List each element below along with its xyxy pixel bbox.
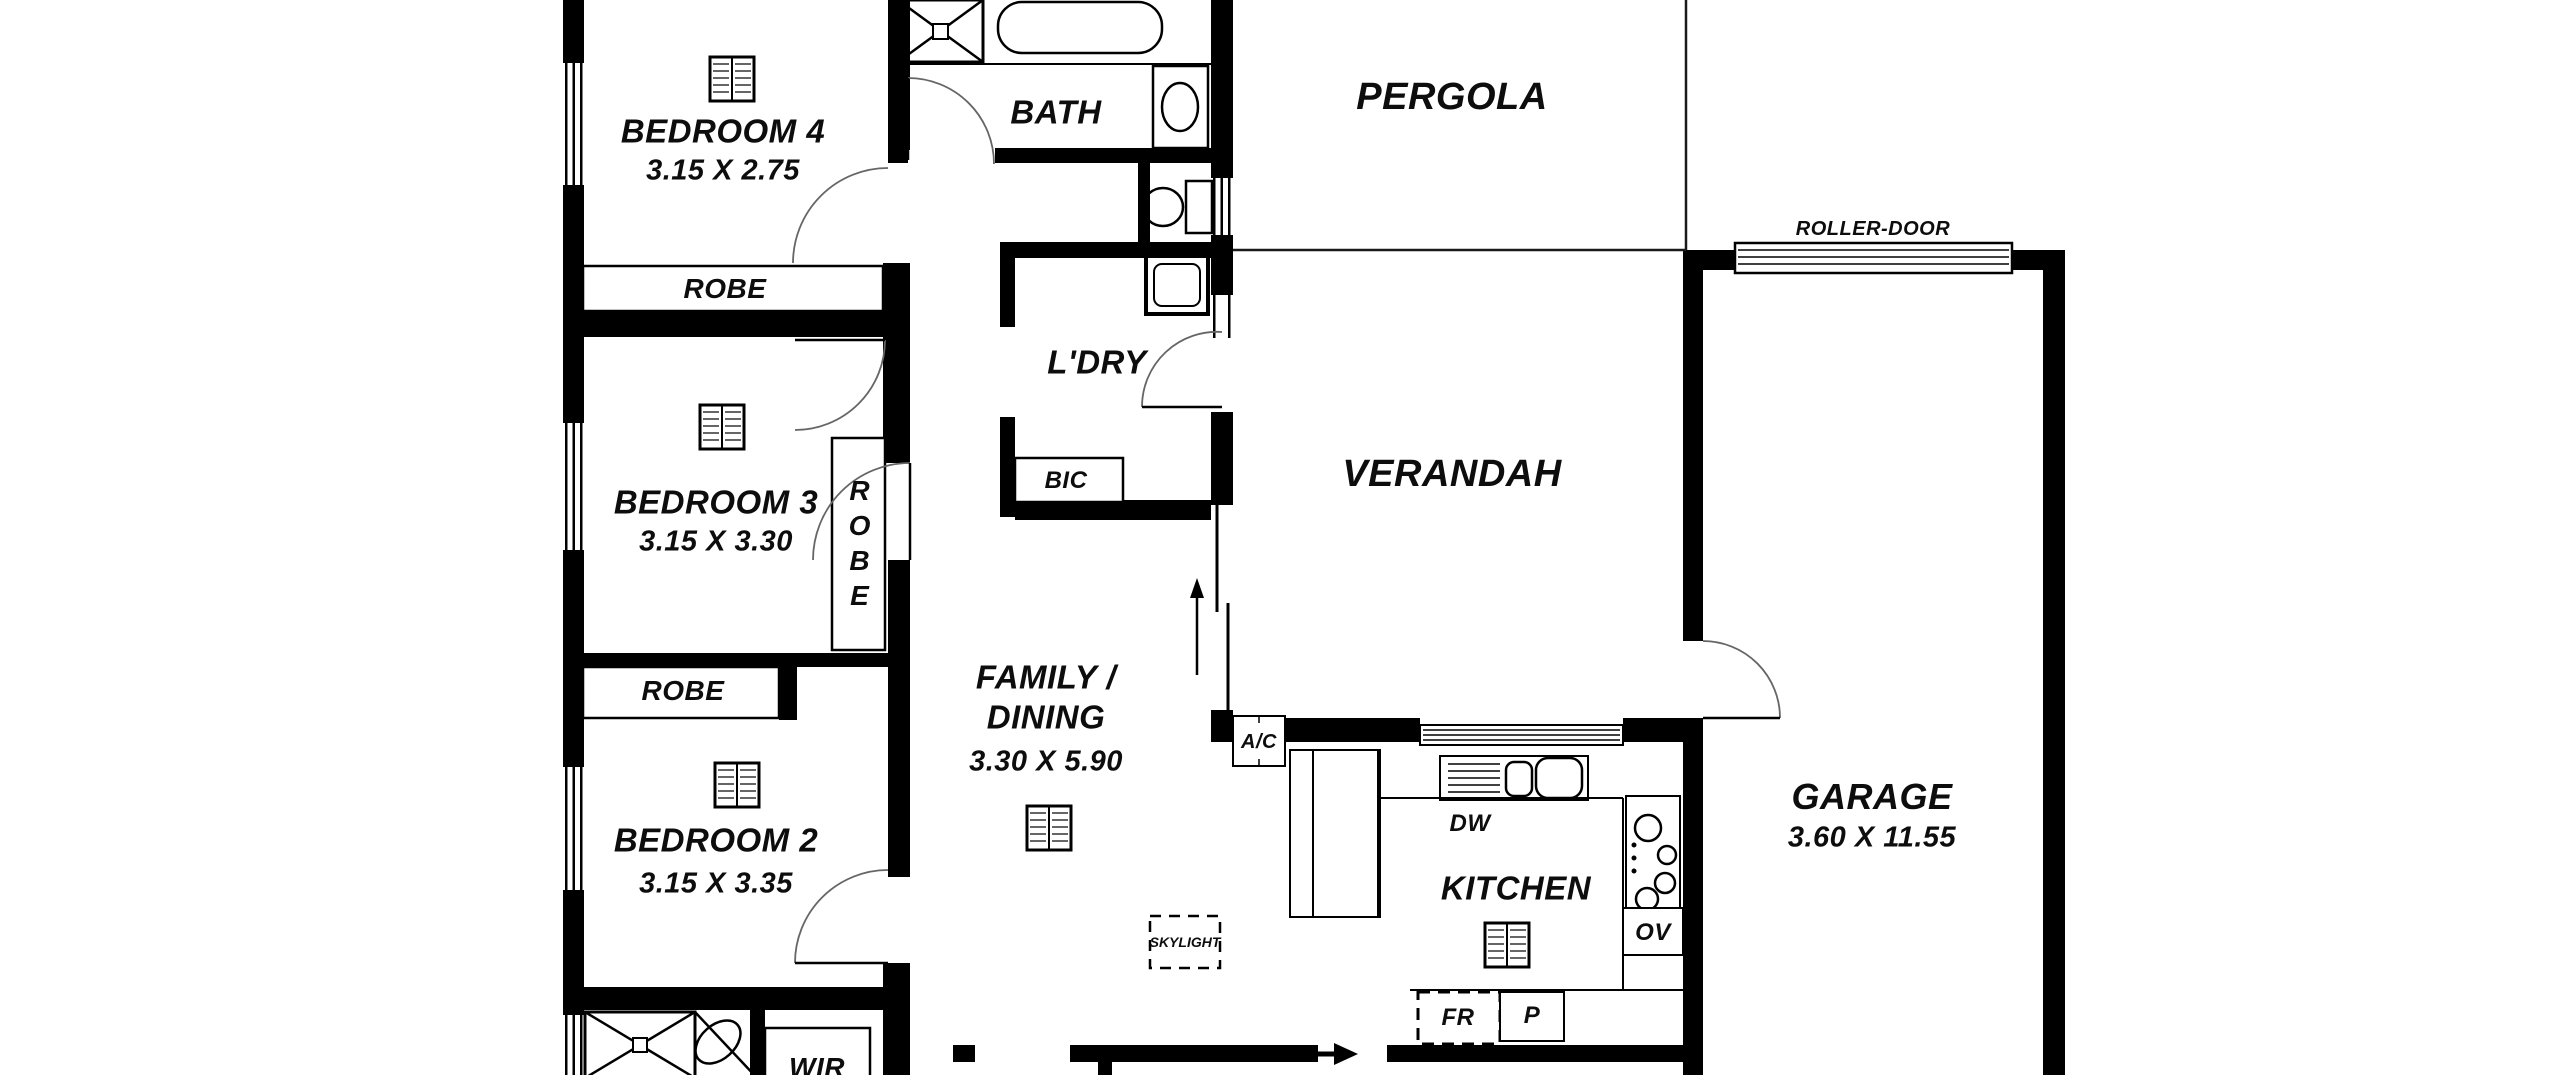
room-label-laundry: L'DRY xyxy=(1047,346,1147,379)
room-label-bedroom2: BEDROOM 2 xyxy=(614,824,818,857)
vanity-basin-icon xyxy=(687,1012,757,1075)
window-icon xyxy=(563,767,584,890)
sliding-door-icon xyxy=(1190,505,1233,710)
roller-door-icon xyxy=(1735,243,2012,273)
roller-door-label: ROLLER-DOOR xyxy=(1796,219,1950,239)
oven-label: OV xyxy=(1635,921,1671,945)
light-fixture-icon xyxy=(700,405,744,449)
room-dims-bedroom3: 3.15 X 3.30 xyxy=(639,528,793,557)
room-dims-garage: 3.60 X 11.55 xyxy=(1788,824,1956,853)
light-fixture-icon xyxy=(1485,923,1529,967)
room-label-garage: GARAGE xyxy=(1791,779,1952,815)
ac-label: A/C xyxy=(1241,732,1277,752)
wir-label: WIR xyxy=(789,1054,845,1075)
robe-label-bed4: ROBE xyxy=(684,275,767,303)
robe-label-bed2: ROBE xyxy=(642,677,725,705)
window-icon xyxy=(563,423,584,550)
window-icon xyxy=(563,1015,584,1075)
pantry-label: P xyxy=(1524,1004,1541,1028)
window-icon xyxy=(1211,178,1233,235)
toilet-icon xyxy=(1143,181,1212,233)
room-label-bath: BATH xyxy=(1010,96,1101,129)
room-label-bedroom4: BEDROOM 4 xyxy=(621,115,825,148)
window-icon xyxy=(563,63,584,185)
cooktop-icon xyxy=(1626,796,1680,910)
skylight-label: SKYLIGHT xyxy=(1150,935,1221,949)
room-label-family-line2: DINING xyxy=(987,701,1106,734)
room-label-pergola: PERGOLA xyxy=(1356,78,1547,116)
room-dims-bedroom4: 3.15 X 2.75 xyxy=(646,157,800,186)
room-label-kitchen: KITCHEN xyxy=(1441,872,1591,905)
room-dims-bedroom2: 3.15 X 3.35 xyxy=(639,870,793,899)
floor-plan: BEDROOM 4 3.15 X 2.75 ROBE BATH PERGOLA … xyxy=(0,0,2560,1075)
shower-icon xyxy=(898,0,983,62)
dishwasher-label: DW xyxy=(1450,812,1491,836)
room-dims-family: 3.30 X 5.90 xyxy=(969,748,1123,777)
light-fixture-icon xyxy=(710,57,754,101)
robe-label-bed3: ROBE xyxy=(845,475,873,615)
room-label-family-line1: FAMILY / xyxy=(976,661,1116,694)
light-fixture-icon xyxy=(715,763,759,807)
pergola-boundary xyxy=(1233,0,1686,250)
fridge-label: FR xyxy=(1442,1006,1475,1030)
room-label-verandah: VERANDAH xyxy=(1342,455,1561,493)
room-label-bedroom3: BEDROOM 3 xyxy=(614,486,818,519)
floor-plan-drawing xyxy=(0,0,2560,1075)
bathtub-icon xyxy=(998,2,1162,53)
sink-icon xyxy=(1440,756,1588,800)
bic-label: BIC xyxy=(1045,469,1088,493)
basin-icon xyxy=(1153,66,1208,148)
kitchen-window-icon xyxy=(1420,725,1623,745)
laundry-tub-icon xyxy=(1146,256,1208,314)
shower-icon xyxy=(585,1012,695,1075)
light-fixture-icon xyxy=(1027,806,1071,850)
